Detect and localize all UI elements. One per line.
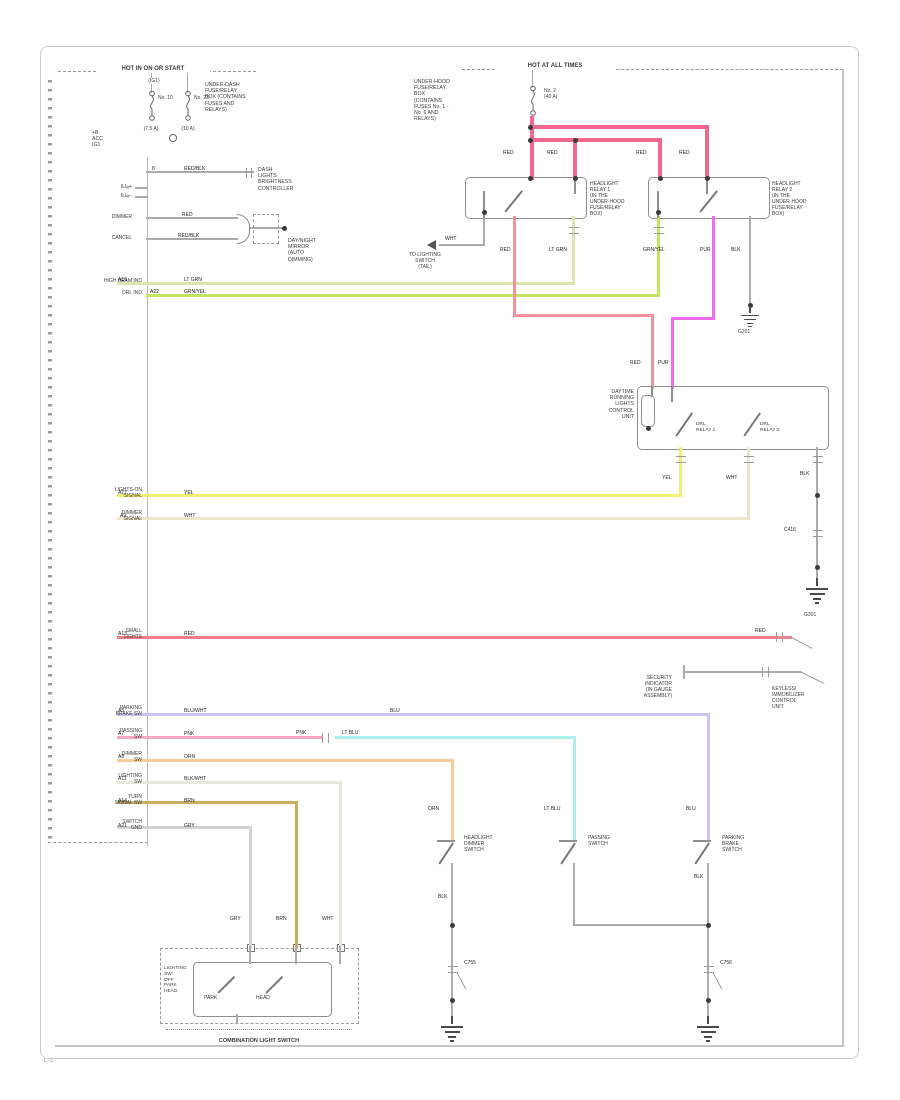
connector-label: C755 bbox=[464, 960, 476, 966]
conn-tick bbox=[676, 456, 686, 457]
wire-color-label: WHT bbox=[322, 916, 333, 922]
conn-tick bbox=[654, 227, 664, 228]
leftbox-right-edge bbox=[147, 157, 148, 846]
wire-red-relay-to-drl bbox=[513, 314, 654, 317]
drl-unit-label: DAYTIME RUNNING LIGHTS CONTROL UNIT bbox=[576, 389, 634, 420]
relay-coil bbox=[641, 395, 655, 427]
drl-stub-pur bbox=[671, 386, 672, 401]
ground-bar bbox=[749, 307, 750, 313]
ground-bar bbox=[748, 326, 751, 328]
ground-bar bbox=[697, 1026, 719, 1028]
fuse23-amps: (10 A) bbox=[171, 126, 205, 132]
banner-right-label: HOT AT ALL TIMES bbox=[494, 63, 616, 70]
junction-dot bbox=[573, 176, 578, 181]
junction-dot bbox=[450, 998, 455, 1003]
junction-dot bbox=[528, 125, 533, 130]
splice-circle bbox=[169, 134, 177, 142]
ground-bar bbox=[744, 319, 756, 321]
wire-wht-lighting-sw bbox=[339, 781, 342, 949]
wire-color-label: YEL bbox=[184, 490, 193, 496]
pin-tag: 8 bbox=[152, 166, 155, 172]
junction-dot bbox=[815, 493, 820, 498]
wire-orn-dimmer bbox=[117, 759, 454, 762]
wire-color-label: BLK bbox=[694, 874, 703, 880]
parking-brake-switch-label: PARKING BRAKE SWITCH bbox=[722, 835, 776, 853]
wiring-diagram-canvas: L-1 HOT IN ON OR START(IG1)HOT AT ALL TI… bbox=[0, 0, 900, 1100]
conn-tick bbox=[768, 667, 769, 677]
page-corner-label: L-1 bbox=[44, 1058, 53, 1065]
wire-hot-feed-branch-a bbox=[705, 125, 709, 180]
combination-switch-caption: COMBINATION LIGHT SWITCH bbox=[188, 1038, 330, 1045]
wire-gry-switch-gnd bbox=[249, 826, 252, 949]
wire-color-label: RED bbox=[500, 247, 511, 253]
banner-left-sub: (IG1) bbox=[134, 78, 174, 84]
conn-tick bbox=[813, 536, 823, 537]
leftbox-bottom-dash bbox=[48, 842, 148, 843]
junction-dot bbox=[528, 176, 533, 181]
ground-g201-label: G201 bbox=[738, 329, 750, 335]
junction-dot bbox=[450, 923, 455, 928]
wire-color-label: WHT bbox=[445, 236, 456, 242]
wire-yel-lights-on bbox=[679, 447, 682, 497]
combo-head-label: HEAD bbox=[256, 995, 270, 1001]
wire-color-label: RED bbox=[547, 150, 558, 156]
conn-tick bbox=[654, 233, 664, 234]
combo-park-label: PARK bbox=[204, 995, 217, 1001]
wire-relay2-ground bbox=[749, 216, 750, 305]
wire-color-label: RED/BLK bbox=[184, 166, 205, 172]
drl-relay1-arm-label: DRL RELAY 1 bbox=[696, 422, 715, 434]
wire-pur-relay-to-drl bbox=[712, 216, 715, 320]
fuse10-amps: (7.5 A) bbox=[134, 126, 168, 132]
wire-pur-relay-to-drl bbox=[671, 317, 715, 320]
combo-feed-gry bbox=[249, 946, 250, 963]
ground-bar bbox=[441, 1026, 463, 1028]
frame-bottom-border bbox=[55, 1045, 843, 1046]
conn-tick bbox=[322, 733, 323, 743]
ground-bar bbox=[448, 1036, 456, 1038]
wire-grn-yel-drl bbox=[657, 216, 660, 297]
ground-g401 bbox=[440, 1016, 464, 1044]
chevron: « bbox=[126, 184, 130, 192]
conn-tick bbox=[448, 966, 458, 967]
junction-dot bbox=[706, 923, 711, 928]
pin-tag: A21 bbox=[118, 823, 127, 829]
wire-color-label: BLK/WHT bbox=[184, 776, 206, 782]
junction-dot bbox=[705, 176, 710, 181]
ground-bar bbox=[747, 323, 753, 325]
ground-bar bbox=[806, 588, 828, 590]
junction-dot bbox=[706, 998, 711, 1003]
ground-g301 bbox=[805, 578, 829, 606]
keyless-end-tick bbox=[683, 665, 684, 678]
headlight-relay1-label: HEADLIGHT RELAY 1 (IN THE UNDER-HOOD FUS… bbox=[590, 181, 644, 217]
wire-color-label: BRN bbox=[276, 916, 287, 922]
junction-dot bbox=[282, 226, 287, 231]
passing-switch-label: PASSING SWITCH bbox=[588, 835, 636, 847]
wire-color-label: LT GRN bbox=[184, 277, 202, 283]
wire-passing-sw-join bbox=[573, 924, 708, 925]
wire-grn-yel-drl bbox=[146, 294, 660, 297]
ground-bar bbox=[451, 1016, 453, 1024]
wire-red-relay-to-drl bbox=[513, 216, 516, 317]
wire-color-label: WHT bbox=[184, 513, 195, 519]
wire-red-small-lights bbox=[117, 636, 792, 639]
wire-color-label: GRN/YEL bbox=[184, 289, 206, 295]
dimmer-row-label: DIMMER bbox=[58, 214, 132, 220]
wire-passing-sw-join bbox=[573, 863, 574, 925]
wire-pur-relay-to-drl bbox=[671, 317, 674, 389]
conn-tick bbox=[251, 168, 252, 178]
wire-color-label: LT BLU bbox=[342, 730, 359, 736]
ground-bar bbox=[741, 315, 758, 317]
wire-color-label: RED bbox=[755, 628, 766, 634]
conn-tick bbox=[813, 462, 823, 463]
wire-color-label: BLU bbox=[390, 708, 400, 714]
junction-dot bbox=[646, 426, 651, 431]
wire-brn-turn-signal bbox=[117, 801, 298, 804]
wire-red-relay-to-drl bbox=[651, 314, 654, 389]
wire-color-label: WHT bbox=[726, 475, 737, 481]
wire-color-label: PNK bbox=[184, 731, 194, 737]
ground-bar bbox=[816, 578, 818, 586]
ground-bar bbox=[707, 1016, 709, 1024]
pin-tag: A5 bbox=[118, 708, 124, 714]
ill-plus-label: ILL + bbox=[76, 184, 132, 190]
wire-color-label: RED bbox=[182, 212, 193, 218]
dimmer-switch-label: HEADLIGHT DIMMER SWITCH bbox=[464, 835, 518, 853]
wire-wht-dimmer-signal bbox=[117, 517, 750, 520]
combo-inner-out bbox=[236, 1014, 237, 1023]
wire-orn-dimmer bbox=[451, 759, 454, 840]
pin-tag: A13 bbox=[118, 631, 127, 637]
keyless-unit-label: KEYLESS/ IMMOBILIZER CONTROL UNIT bbox=[772, 686, 834, 710]
conn-tick bbox=[813, 530, 823, 531]
junction-dot bbox=[573, 138, 578, 143]
ground-g402 bbox=[696, 1016, 720, 1044]
ground-bar bbox=[450, 1040, 454, 1042]
ground-g301-label: G301 bbox=[804, 612, 816, 618]
pin-tag: A14 bbox=[118, 798, 127, 804]
cancel-row-label: CANCEL bbox=[58, 235, 132, 241]
junction-dot bbox=[658, 176, 663, 181]
drl-ind-row-label: DRL IND bbox=[50, 290, 142, 296]
wire-hot-feed-branch-a bbox=[530, 125, 709, 129]
junction-dot bbox=[815, 565, 820, 570]
combo-feed-brn bbox=[295, 946, 296, 963]
switch-gnd-row-label: SWITCH GND bbox=[50, 819, 142, 831]
wire-color-label: BLK bbox=[731, 247, 740, 253]
wire-dimmer-sw-gnd bbox=[451, 863, 452, 1016]
junction-dot bbox=[656, 210, 661, 215]
conn-tick bbox=[569, 227, 579, 228]
mirror-label: DAY/NIGHT MIRROR (AUTO DIMMING) bbox=[288, 238, 340, 263]
pin-tag: A17 bbox=[118, 490, 127, 496]
chevron: « bbox=[126, 193, 130, 201]
to-lighting-switch-label: TO LIGHTING SWITCH (TAIL) bbox=[396, 252, 454, 270]
wire-color-label: BLU/WHT bbox=[184, 708, 207, 714]
junction-dot bbox=[482, 210, 487, 215]
drl-stub-red bbox=[651, 386, 652, 396]
drl-relay2-arm-label: DRL RELAY 2 bbox=[760, 422, 779, 434]
wire-color-label: PUR bbox=[658, 360, 669, 366]
fuse10-label: No. 10 bbox=[158, 95, 173, 101]
wire-mirror-merged bbox=[249, 227, 285, 229]
drl-control-unit-box bbox=[637, 386, 829, 450]
leftbox-pin-list: +B ACC IG1 bbox=[92, 130, 103, 149]
wire-brn-turn-signal bbox=[295, 801, 298, 949]
conn-tick bbox=[328, 733, 329, 743]
wire-color-label: RED/BLK bbox=[178, 233, 199, 239]
ill-minus-label: ILL − bbox=[76, 193, 132, 199]
wire-color-label: LT GRN bbox=[549, 247, 567, 253]
wire-drl-ground bbox=[816, 447, 817, 580]
high-beam-row-label: HIGH BEAM IND bbox=[50, 278, 142, 284]
wire-color-label: GRN/YEL bbox=[643, 247, 665, 253]
ground-bar bbox=[445, 1031, 460, 1033]
pin-tag: A9 bbox=[120, 513, 126, 519]
lighting-sw-row-label: LIGHTING SW bbox=[50, 773, 142, 785]
ground-bar bbox=[810, 593, 825, 595]
fuse2-label: No. 2 (40 A) bbox=[544, 88, 557, 100]
parking-brake-row-label: PARKING BRAKE SW bbox=[50, 705, 142, 717]
wire-color-label: BRN bbox=[184, 798, 195, 804]
wire-blu-parking-brake bbox=[707, 713, 710, 840]
wire-hot-feed-branch-b bbox=[658, 138, 662, 180]
wire-color-label: PUR bbox=[700, 247, 711, 253]
turn-signal-row-label: TURN SIGNAL SW bbox=[50, 794, 142, 806]
combo-position-list: LIGHTING SW: OFF PARK HEAD bbox=[164, 966, 187, 995]
conn-tick bbox=[762, 667, 763, 677]
passing-row-label: PASSING SW bbox=[50, 728, 142, 740]
combination-switch-inner-box bbox=[193, 962, 332, 1017]
wire-color-label: BLK bbox=[800, 471, 809, 477]
fuse-23 bbox=[182, 90, 194, 122]
conn-tick bbox=[676, 462, 686, 463]
pin-tag: A22 bbox=[150, 289, 159, 295]
wire-color-label: RED bbox=[636, 150, 647, 156]
dash-brightness-label: DASH LIGHTS BRIGHTNESS CONTROLLER bbox=[258, 167, 308, 192]
connector-label: C416 bbox=[784, 527, 796, 533]
wire-color-label: RED bbox=[630, 360, 641, 366]
fuse-2 bbox=[527, 85, 539, 117]
connector-label: C756 bbox=[720, 960, 732, 966]
frame-right-border bbox=[842, 69, 843, 1046]
wire-color-label: GRY bbox=[184, 823, 195, 829]
wire-lt-blu-passing bbox=[573, 736, 576, 840]
conn-tick bbox=[776, 632, 777, 642]
wire-color-label: RED bbox=[503, 150, 514, 156]
wire-color-label: RED bbox=[679, 150, 690, 156]
pin-tag: A7 bbox=[118, 731, 124, 737]
wire-color-label: ORN bbox=[184, 754, 195, 760]
conn-tick bbox=[744, 456, 754, 457]
wire-hot-feed-branch-b bbox=[530, 138, 662, 142]
wire-color-label: YEL bbox=[662, 475, 671, 481]
dimmer-row-label2: DIMMER SW bbox=[50, 751, 142, 763]
wire-color-label: BLU bbox=[686, 806, 696, 812]
conn-tick bbox=[704, 966, 714, 967]
pin-tag: A8 bbox=[118, 754, 124, 760]
wire-color-label: BLK bbox=[438, 894, 447, 900]
combo-feed-wht bbox=[339, 946, 340, 963]
lights-on-row-label: LIGHTS-ON SIGNAL bbox=[50, 487, 142, 499]
wire-color-label: ORN bbox=[428, 806, 439, 812]
fuse-10 bbox=[146, 90, 158, 122]
conn-tick bbox=[246, 168, 247, 178]
pin-tag: A16 bbox=[118, 277, 127, 283]
conn-tick bbox=[782, 632, 783, 642]
wire-relay1-coil-out bbox=[483, 216, 484, 245]
ground-bar bbox=[704, 1036, 712, 1038]
wire-color-label: RED bbox=[184, 631, 195, 637]
wire-parking-sw-gnd bbox=[707, 863, 708, 1016]
under-hood-box-label: UNDER-HOOD FUSE/RELAY BOX (CONTAINS FUSE… bbox=[414, 79, 450, 122]
ground-bar bbox=[815, 602, 819, 604]
banner-left-label: HOT IN ON OR START bbox=[96, 66, 210, 73]
ground-bar bbox=[706, 1040, 710, 1042]
conn-tick bbox=[569, 233, 579, 234]
junction-dot bbox=[528, 138, 533, 143]
wire-lt-blu-passing bbox=[335, 736, 576, 739]
wire-color-label: GRY bbox=[230, 916, 241, 922]
wire-color-label: PNK bbox=[296, 730, 306, 736]
stub-ill-minus bbox=[135, 196, 147, 197]
ground-g201 bbox=[741, 307, 760, 329]
off-page-arrow bbox=[427, 240, 436, 250]
wire-wht-lighting-sw bbox=[117, 781, 342, 784]
wire-wht-dimmer-signal bbox=[747, 447, 750, 520]
security-indicator-label: SECURITY INDICATOR (IN GAUGE ASSEMBLY) bbox=[614, 675, 672, 699]
wire-color-label: LT BLU bbox=[544, 806, 561, 812]
small-lights-row-label: SMALL LIGHTS bbox=[50, 628, 142, 640]
under-dash-box-label: UNDER-DASH FUSE/RELAY BOX (CONTAINS FUSE… bbox=[205, 82, 246, 113]
dimmer-signal-row-label: DIMMER SIGNAL bbox=[50, 510, 142, 522]
wire-keyless-unit bbox=[683, 671, 800, 672]
wire-relay1-coil-out bbox=[439, 244, 484, 245]
headlight-relay2-label: HEADLIGHT RELAY 2 (IN THE UNDER-HOOD FUS… bbox=[772, 181, 826, 217]
ground-bar bbox=[813, 598, 821, 600]
connector-dash-box bbox=[253, 214, 279, 244]
conn-tick bbox=[744, 462, 754, 463]
conn-tick bbox=[813, 456, 823, 457]
wire-yel-lights-on bbox=[117, 494, 682, 497]
ground-bar bbox=[701, 1031, 716, 1033]
wire-pnk-passing bbox=[117, 736, 322, 739]
wire-hot-feed-drop bbox=[573, 138, 577, 180]
combo-pin-row bbox=[166, 1029, 352, 1030]
stub-ill-plus bbox=[135, 187, 147, 188]
pin-tag: A11 bbox=[118, 776, 127, 782]
